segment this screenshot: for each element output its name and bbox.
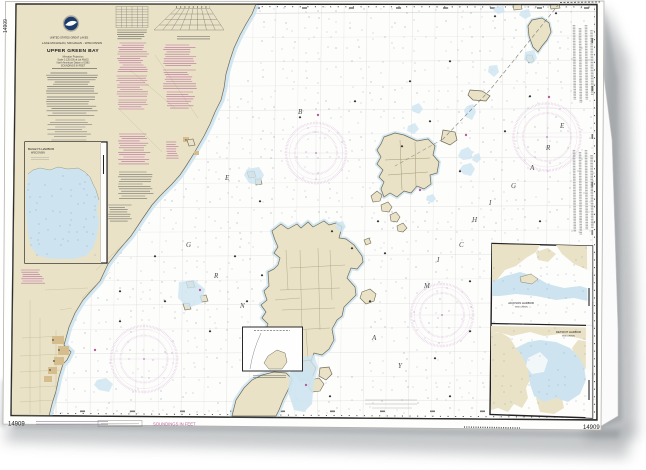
svg-text:LAKE MICHIGAN, MICHIGAN - WISC: LAKE MICHIGAN, MICHIGAN - WISCONSIN — [42, 41, 102, 45]
svg-text:E: E — [559, 122, 565, 130]
svg-text:JACKSON HARBOR: JACKSON HARBOR — [508, 301, 534, 305]
svg-text:M: M — [423, 282, 431, 290]
svg-text:G: G — [511, 182, 516, 190]
svg-text:H: H — [471, 216, 478, 224]
svg-text:14909: 14909 — [3, 19, 9, 33]
svg-text:WISCONSIN: WISCONSIN — [31, 152, 45, 155]
svg-text:SOUNDINGS IN FEET: SOUNDINGS IN FEET — [153, 422, 196, 427]
svg-text:UPPER GREEN BAY: UPPER GREEN BAY — [47, 48, 99, 54]
svg-text:N: N — [239, 302, 245, 310]
svg-text:G: G — [186, 241, 191, 249]
svg-text:14909: 14909 — [583, 425, 600, 431]
svg-text:BAILEYS HARBOR: BAILEYS HARBOR — [28, 147, 55, 151]
svg-text:DETROIT HARBOR: DETROIT HARBOR — [556, 330, 581, 334]
svg-text:A: A — [371, 334, 377, 342]
svg-text:SOUNDINGS IN FEET: SOUNDINGS IN FEET — [61, 65, 86, 68]
svg-text:WISCONSIN: WISCONSIN — [562, 336, 575, 338]
svg-text:C: C — [459, 241, 464, 249]
svg-text:E: E — [224, 174, 230, 182]
svg-text:R: R — [213, 272, 219, 280]
svg-text:R: R — [545, 144, 551, 152]
svg-text:UNITED STATES GREAT LAKES: UNITED STATES GREAT LAKES — [50, 36, 89, 40]
svg-text:B: B — [298, 108, 303, 116]
svg-text:14909: 14909 — [8, 422, 25, 428]
svg-text:WISCONSIN: WISCONSIN — [515, 307, 528, 309]
svg-text:A: A — [529, 164, 535, 172]
